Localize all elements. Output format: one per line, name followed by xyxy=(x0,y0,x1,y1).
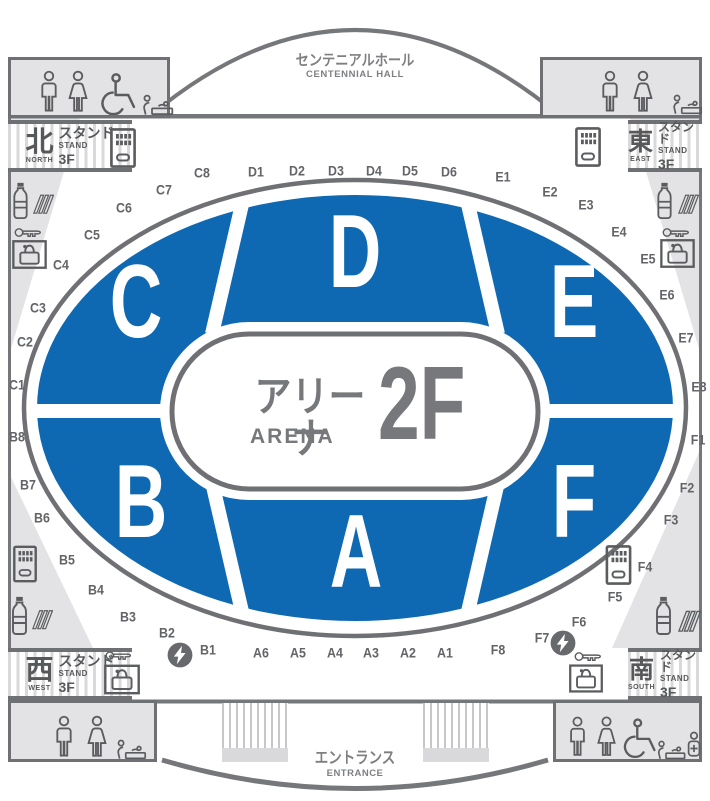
drink-bottle-icon xyxy=(655,594,672,638)
entrance-stairs-left-landing xyxy=(222,748,288,762)
stand-floor: 3F xyxy=(660,685,702,699)
stairs-icon xyxy=(678,604,701,637)
first-aid-icon xyxy=(685,731,703,761)
entrance-arc xyxy=(162,760,548,789)
baby-changing-icon xyxy=(141,94,175,118)
coin-locker-icon xyxy=(660,239,695,268)
stand-kanji: 南 xyxy=(628,658,655,683)
arena-label-en: ARENA xyxy=(250,426,335,447)
restroom-area-bottom-left xyxy=(8,700,157,762)
restroom-area-top-left xyxy=(8,57,170,118)
entrance-stairs-left xyxy=(222,703,288,748)
drink-bottle-icon xyxy=(11,595,28,637)
coin-locker-icon xyxy=(12,240,47,269)
mens-toilet-icon xyxy=(51,714,77,760)
womens-toilet-icon xyxy=(593,715,620,759)
arena-floor-label: 2F xyxy=(378,352,465,456)
stand-direction: EAST xyxy=(628,156,653,163)
restroom-area-top-right xyxy=(540,57,702,118)
stand-label-jp: スタンド xyxy=(59,126,115,140)
vending-machine-icon xyxy=(13,545,37,583)
centennial-hall-shape xyxy=(150,30,560,116)
baby-changing-icon xyxy=(671,94,704,117)
stand-kanji: 東 xyxy=(628,130,653,155)
coin-locker-icon xyxy=(569,663,603,694)
vending-machine-icon xyxy=(110,128,136,168)
stand-label-en: STAND xyxy=(59,142,115,150)
stand-floor: 3F xyxy=(59,152,115,166)
stairs-icon xyxy=(678,189,699,218)
stand-direction: SOUTH xyxy=(628,684,655,691)
stand-kanji: 西 xyxy=(25,656,53,684)
stand-label-en: STAND xyxy=(660,675,702,683)
locker-key-icon xyxy=(14,227,44,238)
stand-label-jp: スタンド xyxy=(660,649,702,673)
locker-key-icon xyxy=(574,651,604,662)
power-icon xyxy=(550,630,576,656)
drink-bottle-icon xyxy=(656,182,673,220)
mens-toilet-icon xyxy=(36,69,62,115)
stand-label-south: 南 SOUTH スタンド STAND 3F xyxy=(628,648,702,700)
power-icon xyxy=(167,642,193,668)
mens-toilet-icon xyxy=(565,715,590,759)
wheelchair-access-icon xyxy=(95,73,141,115)
womens-toilet-icon xyxy=(64,69,92,115)
stand-label-east: 東 EAST スタンド STAND 3F xyxy=(628,120,702,172)
locker-key-icon xyxy=(105,650,134,661)
coin-locker-icon xyxy=(104,664,140,695)
entrance-stairs-right xyxy=(423,703,489,748)
stand-kanji: 北 xyxy=(25,128,53,156)
baby-changing-icon xyxy=(656,740,687,762)
vending-machine-icon xyxy=(605,545,632,585)
venue-floor-map: センテニアルホール CENTENNIAL HALL エントランス ENTRANC… xyxy=(0,0,710,801)
stand-floor: 3F xyxy=(658,157,702,171)
vending-machine-icon xyxy=(575,126,601,168)
womens-toilet-icon xyxy=(83,714,111,760)
baby-changing-icon xyxy=(115,739,148,762)
womens-toilet-icon xyxy=(629,69,657,115)
stand-label-en: STAND xyxy=(658,147,702,155)
locker-key-icon xyxy=(662,227,692,238)
stand-direction: NORTH xyxy=(25,157,53,164)
stairs-icon xyxy=(32,603,53,635)
drink-bottle-icon xyxy=(12,182,29,220)
mens-toilet-icon xyxy=(597,69,623,115)
stand-label-jp: スタンド xyxy=(658,121,702,145)
restroom-area-bottom-right xyxy=(553,700,702,762)
stand-direction: WEST xyxy=(25,685,53,692)
entrance-stairs-right-landing xyxy=(423,748,489,762)
wheelchair-access-icon xyxy=(618,718,661,758)
stairs-icon xyxy=(33,189,54,218)
